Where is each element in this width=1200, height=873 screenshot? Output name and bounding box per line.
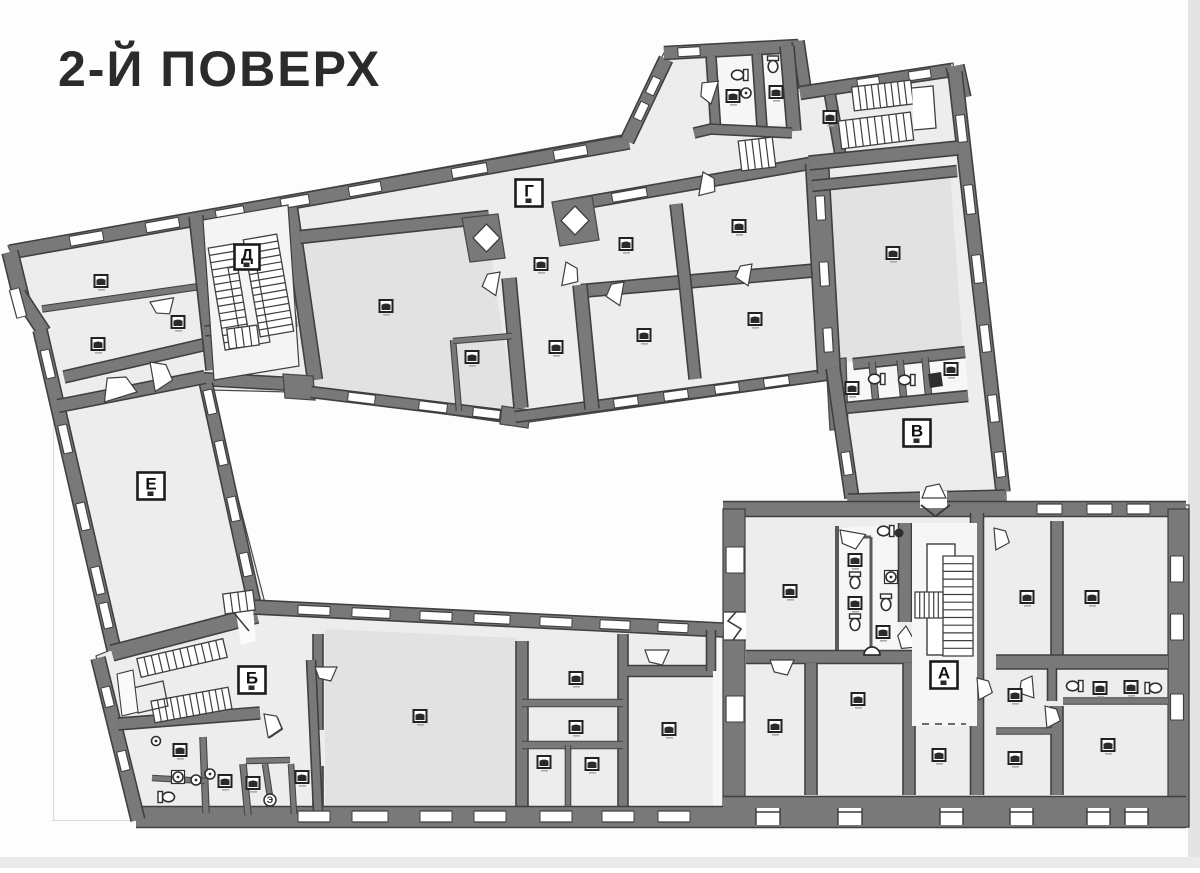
svg-text:2-Й ПОВЕРХ: 2-Й ПОВЕРХ [58, 40, 381, 97]
svg-text:Г: Г [524, 182, 534, 201]
svg-text:Э: Э [267, 795, 274, 805]
svg-text:А: А [938, 664, 950, 683]
svg-text:Б: Б [246, 669, 258, 688]
svg-text:Е: Е [145, 475, 156, 494]
svg-text:Д: Д [241, 246, 253, 265]
svg-text:В: В [911, 422, 923, 441]
